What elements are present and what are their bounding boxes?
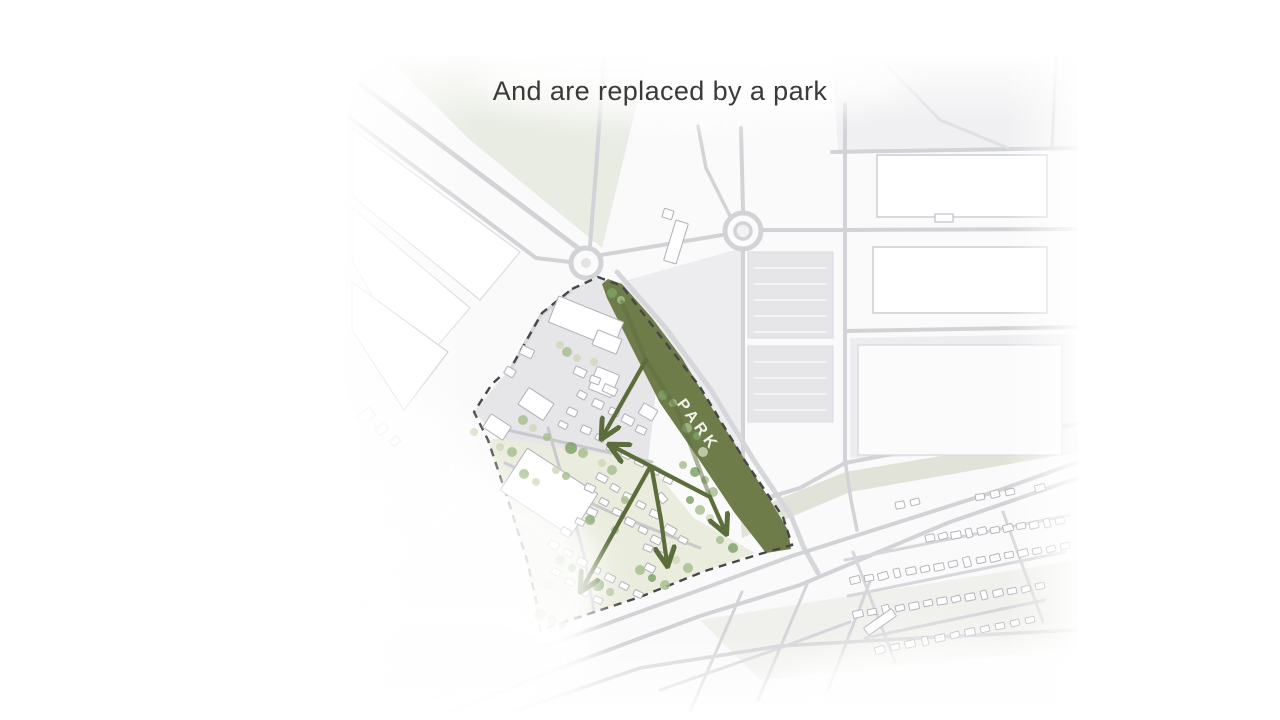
tree: [496, 443, 504, 451]
slide: PARK And are replaced by a park: [0, 0, 1280, 720]
house: [977, 527, 987, 536]
slide-title: And are replaced by a park: [360, 76, 960, 107]
tree: [565, 442, 577, 454]
tree: [543, 433, 551, 441]
tree: [529, 424, 537, 432]
margin-top: [0, 0, 1280, 52]
tree: [562, 347, 572, 357]
margin-left: [0, 0, 345, 720]
tree: [679, 461, 687, 469]
large-building: [935, 214, 953, 222]
house: [990, 526, 1000, 534]
tree: [556, 341, 564, 349]
tree: [660, 580, 670, 590]
house: [976, 556, 986, 564]
tree: [519, 469, 529, 479]
house: [852, 609, 863, 618]
tree: [518, 415, 528, 425]
fade-left: [335, 48, 475, 708]
tree: [607, 465, 617, 475]
fade-right: [1005, 48, 1085, 708]
house: [933, 563, 944, 572]
house: [995, 622, 1005, 629]
tree: [672, 556, 680, 564]
road: [741, 128, 743, 211]
margin-bottom: [0, 712, 1280, 720]
house: [908, 602, 919, 611]
tree: [706, 514, 714, 522]
house: [925, 534, 935, 543]
tree: [585, 515, 595, 525]
tree: [635, 565, 645, 575]
fade-bottom: [335, 635, 1085, 720]
tree: [590, 358, 598, 366]
tree: [532, 478, 540, 486]
tree: [573, 354, 581, 362]
house: [936, 597, 947, 606]
house: [964, 593, 975, 602]
house: [905, 567, 916, 576]
tree: [507, 447, 517, 457]
tree: [728, 543, 738, 553]
parking-lots: [748, 252, 833, 422]
tree: [562, 472, 570, 480]
tree: [695, 505, 705, 515]
tree: [606, 588, 614, 596]
tree: [648, 574, 656, 582]
tree: [716, 536, 724, 544]
house: [864, 574, 874, 581]
house: [895, 501, 905, 510]
house: [990, 490, 1000, 499]
site-plan-map: PARK: [0, 0, 1280, 720]
tree: [598, 459, 606, 467]
house: [975, 493, 985, 500]
tree: [686, 496, 694, 504]
roundabout-center: [735, 223, 751, 239]
margin-right: [1078, 0, 1280, 720]
tree: [683, 563, 693, 573]
house: [950, 531, 961, 540]
tree: [578, 448, 588, 458]
roundabout-center: [581, 258, 591, 268]
parking-lot: [748, 252, 833, 338]
tree: [552, 466, 560, 474]
house: [867, 608, 877, 615]
tree: [607, 288, 617, 298]
